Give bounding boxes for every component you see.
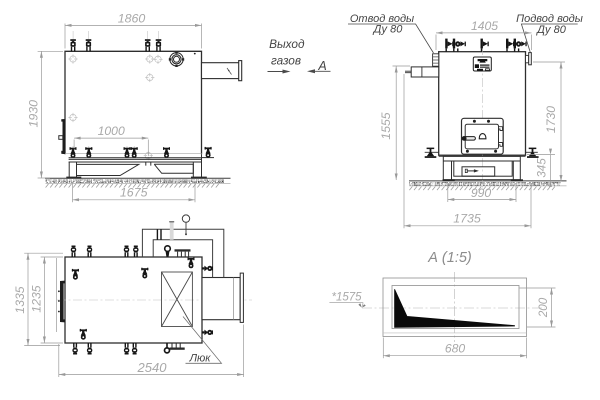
svg-text:1335: 1335	[13, 286, 27, 313]
svg-text:2540: 2540	[137, 360, 168, 375]
svg-text:*1575: *1575	[331, 292, 362, 304]
svg-text:1555: 1555	[379, 112, 393, 139]
svg-text:1000: 1000	[98, 124, 125, 138]
svg-text:Ду 80: Ду 80	[535, 24, 567, 36]
svg-text:1675: 1675	[120, 186, 148, 200]
svg-text:990: 990	[471, 186, 492, 200]
svg-text:А (1:5): А (1:5)	[427, 250, 472, 266]
svg-text:Люк: Люк	[188, 353, 211, 365]
svg-text:1235: 1235	[29, 285, 43, 312]
svg-text:Выход: Выход	[269, 37, 305, 51]
svg-text:200: 200	[537, 297, 550, 318]
svg-text:1930: 1930	[26, 100, 40, 128]
svg-text:680: 680	[445, 342, 466, 356]
svg-text:345: 345	[535, 158, 548, 178]
svg-text:1730: 1730	[544, 106, 558, 133]
svg-text:1405: 1405	[471, 19, 498, 33]
svg-text:А: А	[317, 59, 326, 73]
svg-text:газов: газов	[271, 53, 301, 67]
svg-text:Подвод воды: Подвод воды	[516, 13, 583, 25]
svg-text:1735: 1735	[453, 212, 481, 226]
svg-text:1860: 1860	[118, 11, 146, 25]
svg-text:Ду 80: Ду 80	[372, 24, 404, 36]
